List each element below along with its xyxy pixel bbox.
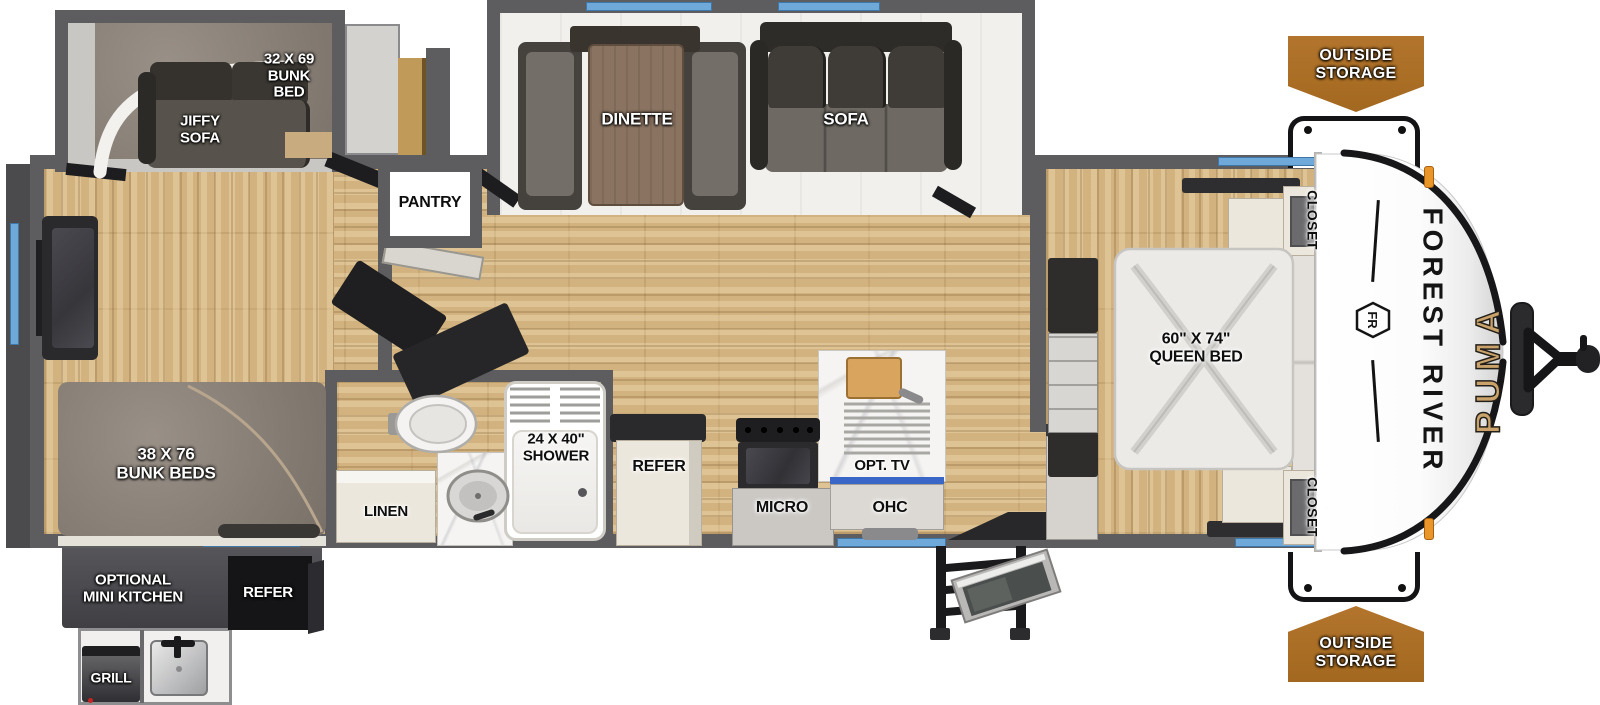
stove-glass	[746, 448, 810, 484]
hitch	[1500, 295, 1600, 425]
storage-frame-top-rivet-2	[1398, 126, 1406, 134]
rear-tv-screen	[52, 228, 94, 348]
sofa-armrest-left	[750, 40, 768, 170]
storage-frame-bottom-rivet-2	[1398, 584, 1406, 592]
jiffy-sofa-label: JIFFY SOFA	[180, 114, 220, 147]
bunk-bed-32-label: 32 X 69 BUNK BED	[264, 51, 314, 101]
outside-sink-faucet-handle	[161, 640, 195, 647]
toilet	[388, 393, 480, 455]
bedroom-dresser-1	[1048, 258, 1098, 333]
sofa-back-cushion-2	[828, 46, 886, 108]
grill-label: GRILL	[91, 670, 132, 685]
rear-wall-jog	[426, 48, 450, 155]
bedroom-dresser-2	[1048, 333, 1098, 433]
sofa-armrest-right	[944, 40, 962, 170]
storage-frame-top-rivet-1	[1304, 126, 1312, 134]
sofa-label: SOFA	[823, 111, 869, 130]
window-rear-left	[10, 223, 19, 345]
marker-light-bottom	[1424, 518, 1434, 540]
opt-tv-label: OPT. TV	[854, 458, 909, 475]
refer-label: REFER	[632, 458, 685, 476]
bedroom-bench-bottom	[1207, 521, 1292, 537]
window-bedroom-top	[1218, 157, 1318, 166]
sofa-back-cushion-1	[768, 46, 826, 108]
pantry-label: PANTRY	[399, 194, 462, 212]
ohc-base	[862, 528, 918, 540]
linen-label: LINEN	[364, 504, 408, 521]
grill-indicator	[88, 698, 93, 703]
window-slide-2	[778, 2, 880, 11]
shower-door-rails	[508, 385, 602, 427]
bedroom-dresser-3	[1048, 433, 1098, 477]
brand-puma: PUMA	[1470, 302, 1507, 434]
bunk-bolster	[218, 524, 320, 538]
micro-label: MICRO	[756, 499, 808, 517]
brand-forest-river: FOREST RIVER	[1417, 161, 1448, 521]
dinette-bench-left-seat	[526, 52, 574, 196]
outside-storage-top-label: OUTSIDE STORAGE	[1316, 47, 1397, 82]
stove-knobs	[740, 424, 816, 436]
shower-drain	[578, 488, 587, 497]
jiffy-sofa-armrest	[138, 72, 156, 164]
refer-cabinet	[616, 440, 702, 546]
outside-storage-badge-top: OUTSIDE STORAGE	[1288, 36, 1424, 112]
rv-floorplan: 32 X 69 BUNK BED JIFFY SOFA DINETTE SOFA…	[0, 0, 1600, 705]
storage-frame-bottom-rivet-1	[1304, 584, 1312, 592]
outside-storage-bottom-label: OUTSIDE STORAGE	[1316, 635, 1397, 670]
closet-top-label: CLOSET	[1304, 190, 1319, 250]
mini-kitchen-divider	[140, 630, 144, 703]
kitchen-sink	[842, 400, 934, 458]
dinette-bench-right-seat	[692, 52, 738, 196]
rear-wardrobe-side	[398, 58, 426, 155]
micro-cabinet	[732, 488, 834, 546]
queen-bed-label: 60" X 74" QUEEN BED	[1149, 330, 1242, 365]
cutting-board	[846, 357, 902, 399]
nightstand-bottom	[1222, 466, 1292, 523]
outside-refer-label: REFER	[243, 585, 293, 602]
bunk-ladder-strip	[285, 132, 332, 158]
outside-storage-badge-bottom: OUTSIDE STORAGE	[1288, 606, 1424, 682]
outside-refer-side	[308, 560, 324, 634]
brand-fr-text: FR	[1365, 311, 1380, 329]
ohc-label: OHC	[873, 499, 908, 517]
bunk-beds-38-label: 38 X 76 BUNK BEDS	[116, 445, 215, 482]
vanity-sink	[445, 466, 511, 526]
brand-fr-logo: FR	[1355, 301, 1391, 339]
refer-counter	[610, 414, 706, 442]
ohc-blue-trim	[830, 477, 944, 484]
shower-label: 24 X 40" SHOWER	[523, 432, 589, 465]
rear-wall-panel	[345, 24, 400, 155]
outside-sink-drain	[176, 666, 182, 672]
entry-steps	[920, 546, 1090, 646]
sofa-back-cushion-3	[888, 46, 946, 108]
bedroom-partition-wall	[1030, 155, 1046, 432]
closet-bottom-label: CLOSET	[1304, 477, 1319, 537]
mini-kitchen-label: OPTIONAL MINI KITCHEN	[83, 573, 183, 606]
window-slide-1	[586, 2, 712, 11]
dinette-label: DINETTE	[601, 111, 672, 130]
